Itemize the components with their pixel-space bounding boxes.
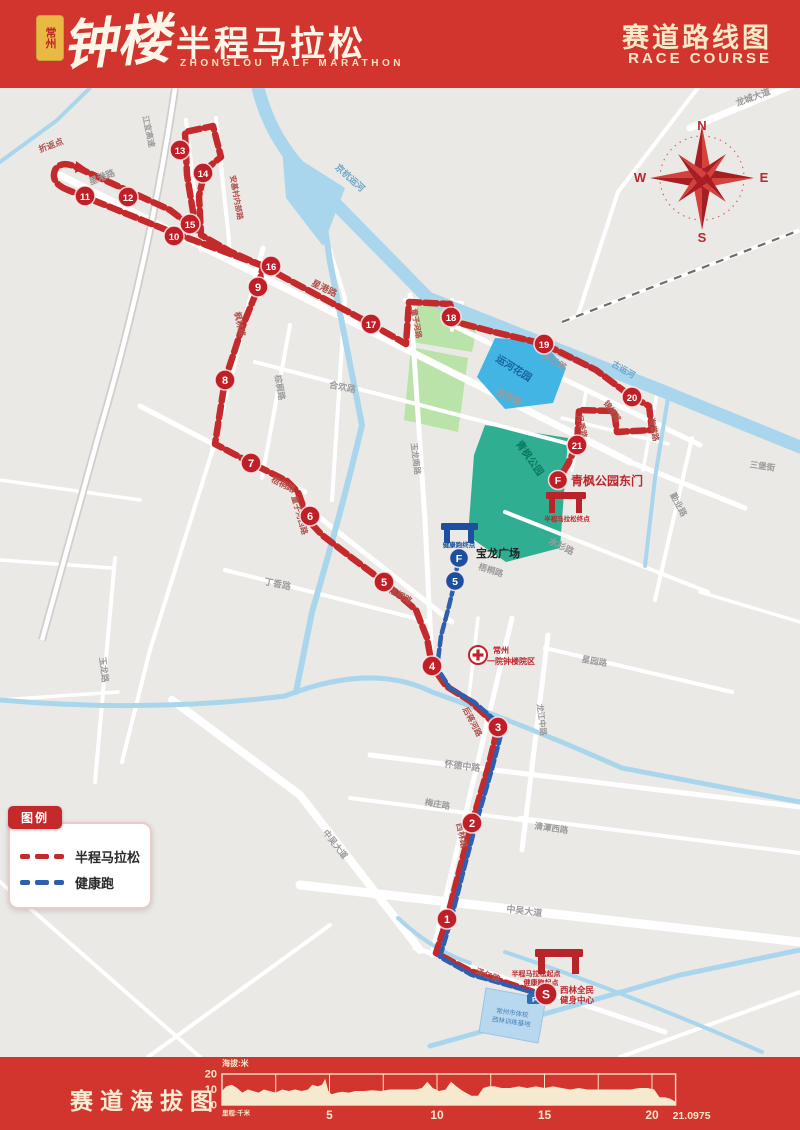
legend: 图例 半程马拉松健康跑 xyxy=(8,822,152,909)
marker-label: 2 xyxy=(469,818,475,830)
compass-letter: N xyxy=(697,118,706,133)
x-tick-label: 5 xyxy=(326,1108,333,1122)
x-tick-label: 10 xyxy=(430,1108,444,1122)
legend-title: 图例 xyxy=(8,806,62,829)
marker-label: 8 xyxy=(222,375,228,387)
marker-label: 16 xyxy=(266,262,277,273)
marker-label: 1 xyxy=(444,914,450,926)
hospital-label-line2: 一院钟楼院区 xyxy=(487,656,535,666)
elevation-chart: 01020510152021.0975海拔:米里程:千米 xyxy=(0,1057,800,1130)
marker-label: 6 xyxy=(307,511,313,523)
legend-item-label: 健康跑 xyxy=(75,873,114,892)
qingfeng-gate-label: 青枫公园东门 xyxy=(571,473,643,488)
marker-label: 5 xyxy=(381,577,387,589)
compass-letter: E xyxy=(760,170,769,185)
end-distance-label: 21.0975 xyxy=(673,1110,711,1122)
y-tick-label: 10 xyxy=(205,1084,217,1096)
marathon-finish-note: 半程马拉松终点 xyxy=(544,514,590,523)
marker-label: S xyxy=(542,987,550,1001)
s-marker-label-line2: 健身中心 xyxy=(560,995,595,1005)
x-tick-label: 20 xyxy=(645,1108,659,1122)
marker-label: 20 xyxy=(627,393,638,404)
elevation-footer: 赛道海拔图 01020510152021.0975海拔:米里程:千米 xyxy=(0,1057,800,1130)
x-tick-label: 15 xyxy=(538,1108,552,1122)
hospital-label-line1: 常州 xyxy=(493,645,509,655)
map-background xyxy=(0,88,800,1057)
header-banner: 常州 钟楼 半程马拉松 ZHONGLOU HALF MARATHON 赛道路线图… xyxy=(0,0,800,88)
baolong-plaza-label: 宝龙广场 xyxy=(476,546,520,560)
x-axis-title: 里程:千米 xyxy=(222,1108,251,1117)
marker-label: 19 xyxy=(539,340,550,351)
marker-label: 7 xyxy=(248,458,254,470)
legend-box: 半程马拉松健康跑 xyxy=(8,822,152,909)
s-marker-label-line1: 西林全民 xyxy=(560,985,594,995)
start-note-line1: 半程马拉松起点 xyxy=(512,969,561,978)
marker-label: 21 xyxy=(572,441,583,452)
marker-label: 12 xyxy=(123,193,134,204)
marker-label: 18 xyxy=(446,313,457,324)
marker-label: 11 xyxy=(80,192,91,203)
y-tick-label: 20 xyxy=(205,1069,217,1081)
marker-label: 13 xyxy=(175,146,186,157)
legend-item-label: 半程马拉松 xyxy=(75,847,140,866)
elevation-profile xyxy=(222,1079,676,1105)
marker-label: F xyxy=(555,475,562,487)
y-axis-title: 海拔:米 xyxy=(222,1058,250,1068)
marker-label: F xyxy=(456,553,463,565)
marker-label: 15 xyxy=(185,220,196,231)
hospital-icon xyxy=(469,646,487,664)
health-finish-note: 健康跑终点 xyxy=(443,540,476,549)
marker-label: 9 xyxy=(255,282,261,294)
event-title-en: ZHONGLOU HALF MARATHON xyxy=(180,58,404,69)
legend-item: 半程马拉松 xyxy=(20,847,140,866)
compass-letter: S xyxy=(698,230,707,245)
marker-label: 10 xyxy=(169,232,180,243)
event-logo-script: 钟楼 xyxy=(59,0,173,88)
y-tick-label: 0 xyxy=(211,1100,217,1112)
marker-label: 17 xyxy=(366,320,377,331)
marker-label: 3 xyxy=(495,722,501,734)
marker-label: 5 xyxy=(452,576,458,588)
marker-label: 14 xyxy=(198,169,209,180)
course-map: 常州市体校 西林训练基地 P 宝龙广场 青枫公园东门 运河花园 青枫公园 常州 … xyxy=(0,88,800,1057)
page-title-en: RACE COURSE xyxy=(628,50,772,67)
legend-item: 健康跑 xyxy=(20,873,140,892)
compass-letter: W xyxy=(634,170,647,185)
marker-label: 4 xyxy=(429,661,436,673)
